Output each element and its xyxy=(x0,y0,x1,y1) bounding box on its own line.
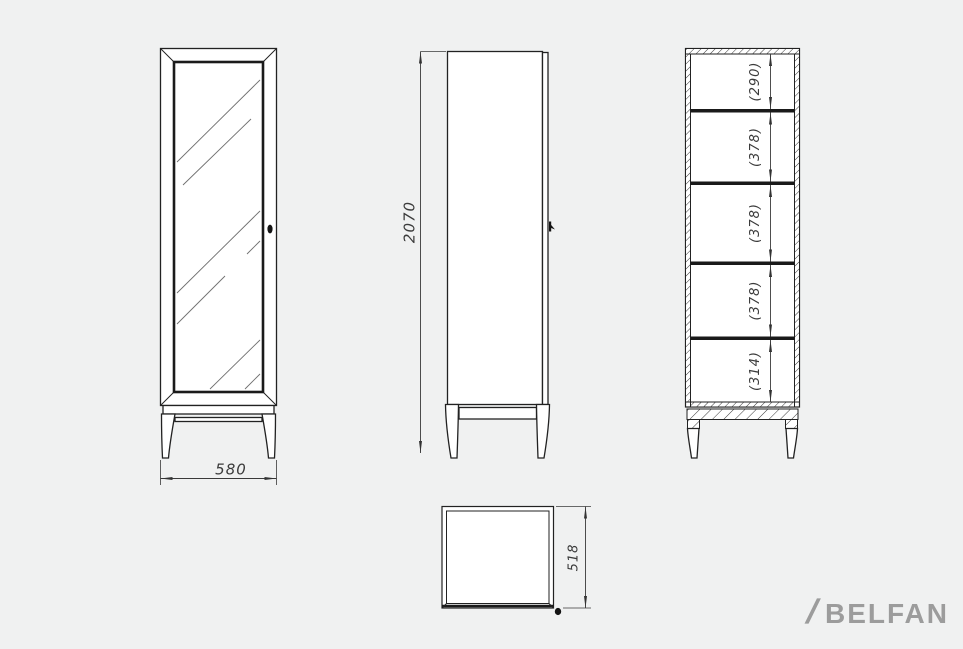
top-depth-label: 518 xyxy=(567,544,582,572)
section-base-rail xyxy=(687,409,798,420)
top-view xyxy=(442,507,561,616)
section-left-panel xyxy=(686,54,691,402)
front-right-leg xyxy=(262,414,276,458)
shelf-4 xyxy=(691,337,795,341)
front-door-frame xyxy=(174,62,263,392)
side-door-edge xyxy=(543,53,549,405)
front-left-leg xyxy=(162,414,176,458)
side-view xyxy=(446,52,556,459)
technical-drawing: 580 2070 xyxy=(0,0,963,649)
compartment-3-label: (378) xyxy=(748,203,763,243)
section-view xyxy=(686,49,800,459)
front-leg-rail xyxy=(175,418,262,422)
compartment-2-label: (378) xyxy=(748,127,763,167)
side-height-dimension: 2070 xyxy=(401,52,447,454)
side-door-knob-icon xyxy=(549,222,555,232)
front-plinth xyxy=(163,406,274,415)
shelf-2 xyxy=(691,182,795,186)
section-right-leg-cut xyxy=(786,420,798,429)
front-width-dimension: 580 xyxy=(161,460,277,485)
front-door-knob-icon xyxy=(267,225,272,234)
logo-slash-icon: / xyxy=(805,595,818,629)
front-width-label: 580 xyxy=(215,461,247,479)
logo-wordmark: BELFAN xyxy=(825,600,949,628)
side-leg-rail xyxy=(459,408,537,420)
section-right-leg xyxy=(786,429,798,459)
side-height-label: 2070 xyxy=(401,201,419,243)
section-bottom-panel xyxy=(691,402,795,407)
shelf-1 xyxy=(691,109,795,113)
section-top-panel xyxy=(686,49,800,55)
compartment-5-label: (314) xyxy=(748,351,763,391)
top-door-knob-icon xyxy=(555,608,561,615)
shelf-3 xyxy=(691,262,795,266)
section-right-panel xyxy=(795,54,800,402)
side-carcass xyxy=(448,52,543,405)
compartment-1-label: (290) xyxy=(748,62,763,102)
drawing-canvas: 580 2070 xyxy=(0,0,963,649)
side-back-leg xyxy=(537,405,550,459)
top-inner xyxy=(447,511,550,604)
section-legs xyxy=(688,420,798,459)
section-left-leg-cut xyxy=(688,420,700,429)
brand-logo: / BELFAN xyxy=(807,595,949,629)
side-front-leg xyxy=(446,405,459,459)
front-view xyxy=(161,49,277,459)
top-depth-dimension: 518 xyxy=(556,507,591,609)
section-outer xyxy=(686,49,800,408)
compartment-4-label: (378) xyxy=(748,281,763,321)
section-left-leg xyxy=(688,429,700,459)
